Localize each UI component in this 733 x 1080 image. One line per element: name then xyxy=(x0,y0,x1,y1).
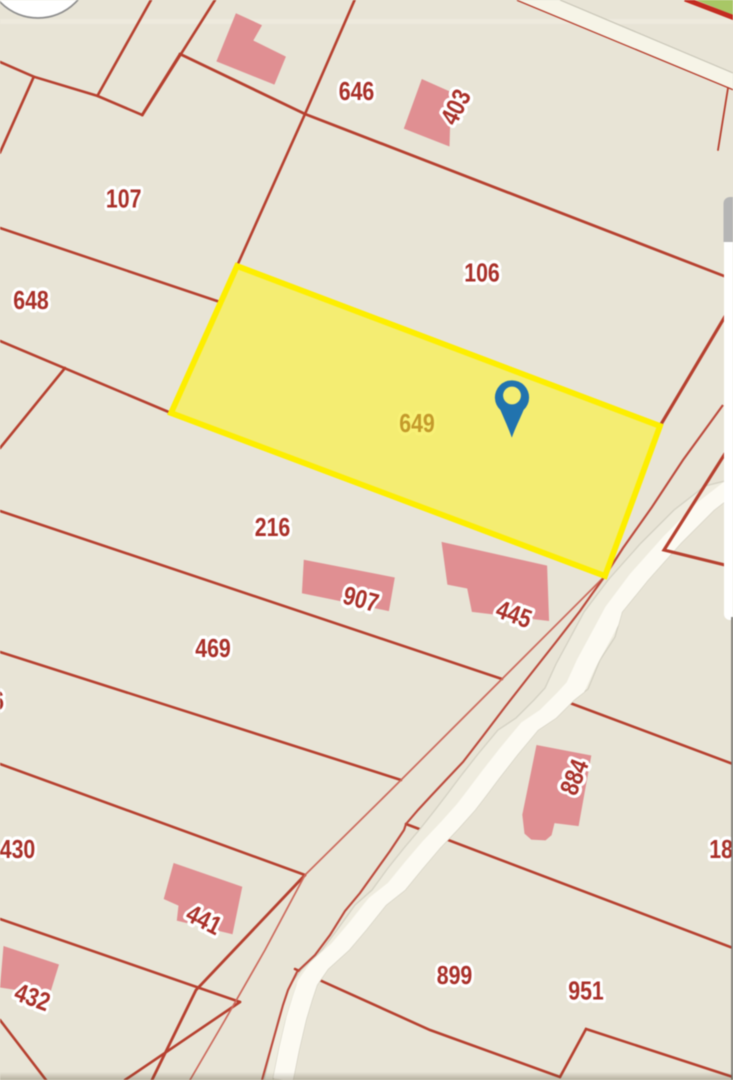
svg-text:649: 649 xyxy=(399,409,435,439)
svg-text:216: 216 xyxy=(255,513,291,543)
svg-text:183: 183 xyxy=(709,835,733,865)
svg-text:648: 648 xyxy=(13,286,49,316)
svg-text:6: 6 xyxy=(0,687,4,717)
svg-text:107: 107 xyxy=(106,185,142,215)
svg-text:899: 899 xyxy=(437,961,473,991)
svg-text:646: 646 xyxy=(339,77,375,107)
svg-text:469: 469 xyxy=(195,634,231,664)
svg-text:106: 106 xyxy=(464,259,500,289)
svg-text:430: 430 xyxy=(0,835,35,865)
svg-text:951: 951 xyxy=(568,977,604,1007)
